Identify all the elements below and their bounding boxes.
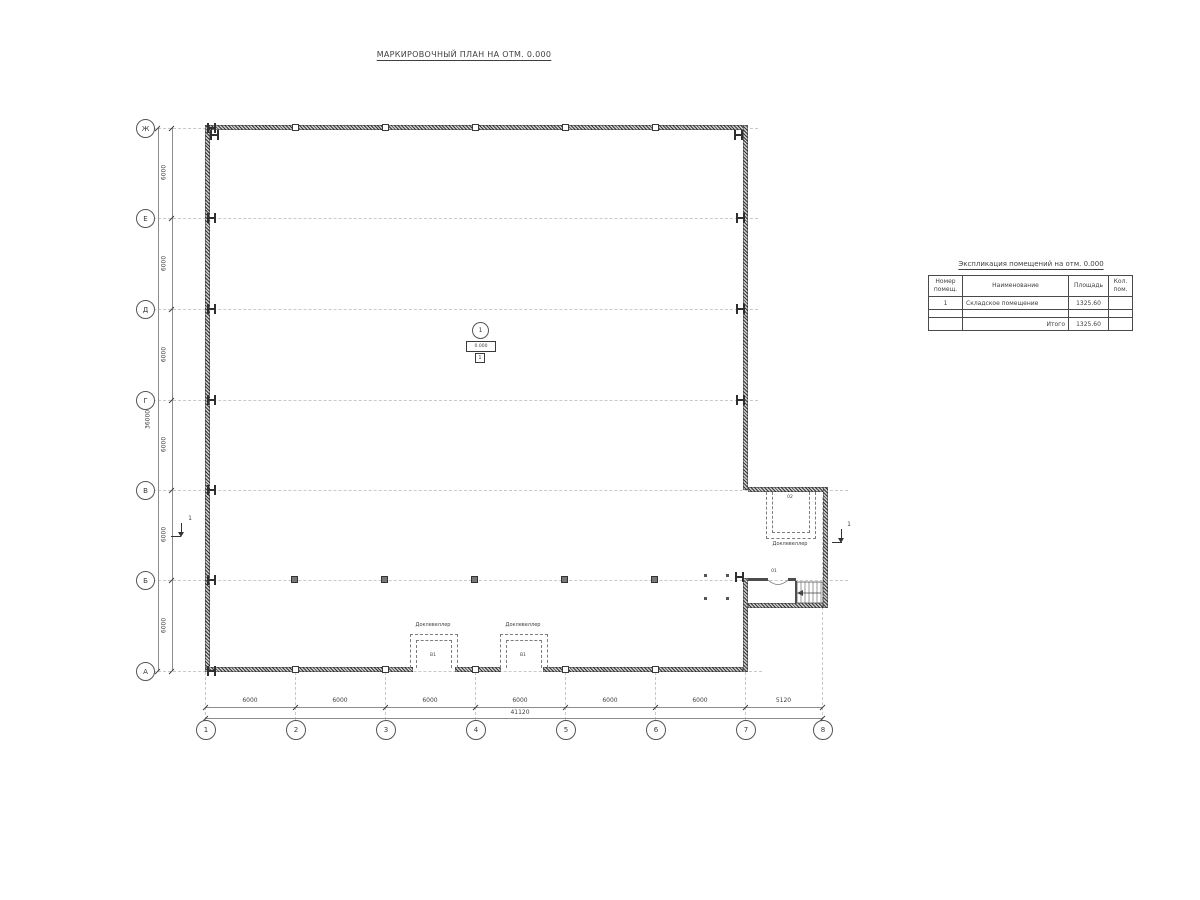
explication-cell <box>1109 310 1133 318</box>
axis-row-bubble: Е <box>136 209 155 228</box>
elevation-mark: 0.000 <box>466 341 496 352</box>
explication-cell <box>929 318 963 331</box>
wall-column-mark <box>382 666 389 673</box>
column-symbol <box>736 395 745 405</box>
axis-col-line <box>655 672 656 720</box>
wall-segment <box>543 667 743 672</box>
wall-column-mark <box>292 124 299 131</box>
axis-col-line <box>205 672 206 720</box>
interior-column-mark <box>562 577 567 582</box>
explication-cell: 1325.60 <box>1069 297 1109 310</box>
floor-plan: 6000600060006000600060003600060006000600… <box>0 0 1200 900</box>
dim-label: 6000 <box>680 698 720 705</box>
axis-col-bubble: 5 <box>556 720 576 740</box>
dim-total-label: 41120 <box>500 710 540 717</box>
wall-column-mark <box>292 666 299 673</box>
wall-column-mark <box>472 124 479 131</box>
axis-col-line <box>745 672 746 720</box>
explication-header: Номер помещ. <box>929 276 963 297</box>
explication-cell <box>963 310 1069 318</box>
wall-column-mark <box>562 666 569 673</box>
axis-row-line <box>153 309 758 310</box>
dim-label: 6000 <box>162 334 169 374</box>
dock-leveler-label: Доклевеллер <box>493 623 553 629</box>
column-symbol <box>736 304 745 314</box>
axis-col-bubble: 3 <box>376 720 396 740</box>
axis-col-line <box>295 672 296 720</box>
axis-row-line <box>153 400 758 401</box>
wall-column-mark <box>382 124 389 131</box>
interior-column-mark <box>382 577 387 582</box>
column-symbol <box>207 666 216 676</box>
column-symbol <box>736 213 745 223</box>
axis-col-bubble: 7 <box>736 720 756 740</box>
axis-row-bubble: Б <box>136 571 155 590</box>
section-mark-bar <box>171 536 181 537</box>
wall-column-mark <box>652 666 659 673</box>
dim-label: 6000 <box>230 698 270 705</box>
explication-cell <box>929 310 963 318</box>
annex-stair-and-door <box>745 485 835 615</box>
dim-chain-left-total <box>158 128 159 671</box>
section-mark-label: 1 <box>184 516 196 523</box>
axis-col-line <box>385 672 386 720</box>
axis-row-bubble: Ж <box>136 119 155 138</box>
dim-label: 6000 <box>590 698 630 705</box>
axis-col-bubble: 1 <box>196 720 216 740</box>
column-symbol <box>207 213 216 223</box>
axis-row-line <box>153 490 848 491</box>
dim-label: 6000 <box>162 243 169 283</box>
dim-label: 6000 <box>320 698 360 705</box>
axis-row-line <box>153 218 758 219</box>
explication-cell: Итого <box>963 318 1069 331</box>
room-number-bubble: 1 <box>472 322 489 339</box>
wall-column-mark <box>562 124 569 131</box>
floor-type-mark: 1 <box>475 353 485 363</box>
column-symbol <box>734 130 743 140</box>
dim-label: 5120 <box>764 698 804 705</box>
column-dot <box>704 574 707 577</box>
interior-column-mark <box>292 577 297 582</box>
axis-col-bubble: 6 <box>646 720 666 740</box>
explication-header: Площадь <box>1069 276 1109 297</box>
wall-column-mark <box>472 666 479 673</box>
explication-header: Наименование <box>963 276 1069 297</box>
column-symbol <box>735 572 744 582</box>
axis-col-bubble: 8 <box>813 720 833 740</box>
axis-row-bubble: Д <box>136 300 155 319</box>
explication-table: Номер помещ.НаименованиеПлощадьКол. пом.… <box>928 275 1133 331</box>
axis-col-line <box>565 672 566 720</box>
explication-title: Экспликация помещений на отм. 0.000 <box>928 260 1134 268</box>
explication-cell: 1 <box>929 297 963 310</box>
axis-row-bubble: В <box>136 481 155 500</box>
explication-cell <box>1109 318 1133 331</box>
explication-cell: 1325.60 <box>1069 318 1109 331</box>
column-dot <box>726 574 729 577</box>
axis-col-line <box>475 672 476 720</box>
dim-label: 6000 <box>162 152 169 192</box>
column-symbol <box>207 485 216 495</box>
axis-col-bubble: 2 <box>286 720 306 740</box>
column-dot <box>704 597 707 600</box>
explication-cell <box>1109 297 1133 310</box>
drawing-sheet: МАРКИРОВОЧНЫЙ ПЛАН НА ОТМ. 0.000 6000600… <box>0 0 1200 900</box>
dim-label: 6000 <box>500 698 540 705</box>
gate-mark: В1 <box>425 653 441 658</box>
dim-label: 6000 <box>162 605 169 645</box>
section-mark-label: 1 <box>843 522 855 529</box>
column-symbol <box>207 304 216 314</box>
gate-mark: В1 <box>515 653 531 658</box>
interior-column-mark <box>472 577 477 582</box>
dim-label: 6000 <box>162 424 169 464</box>
column-symbol <box>210 130 219 140</box>
explication-cell <box>1069 310 1109 318</box>
wall-column-mark <box>652 124 659 131</box>
explication-header: Кол. пом. <box>1109 276 1133 297</box>
dim-chain-bottom <box>205 707 822 708</box>
dock-leveler-label: Доклевеллер <box>403 623 463 629</box>
dim-label: 6000 <box>410 698 450 705</box>
column-dot <box>726 597 729 600</box>
axis-row-bubble: А <box>136 662 155 681</box>
column-symbol <box>207 395 216 405</box>
column-symbol <box>207 575 216 585</box>
explication-cell: Складское помещение <box>963 297 1069 310</box>
interior-column-mark <box>652 577 657 582</box>
dim-label: 6000 <box>162 514 169 554</box>
axis-col-bubble: 4 <box>466 720 486 740</box>
explication-block: Экспликация помещений на отм. 0.000 Номе… <box>928 260 1140 331</box>
dim-chain-bottom-total <box>205 718 822 719</box>
section-mark-bar <box>832 542 842 543</box>
axis-row-bubble: Г <box>136 391 155 410</box>
